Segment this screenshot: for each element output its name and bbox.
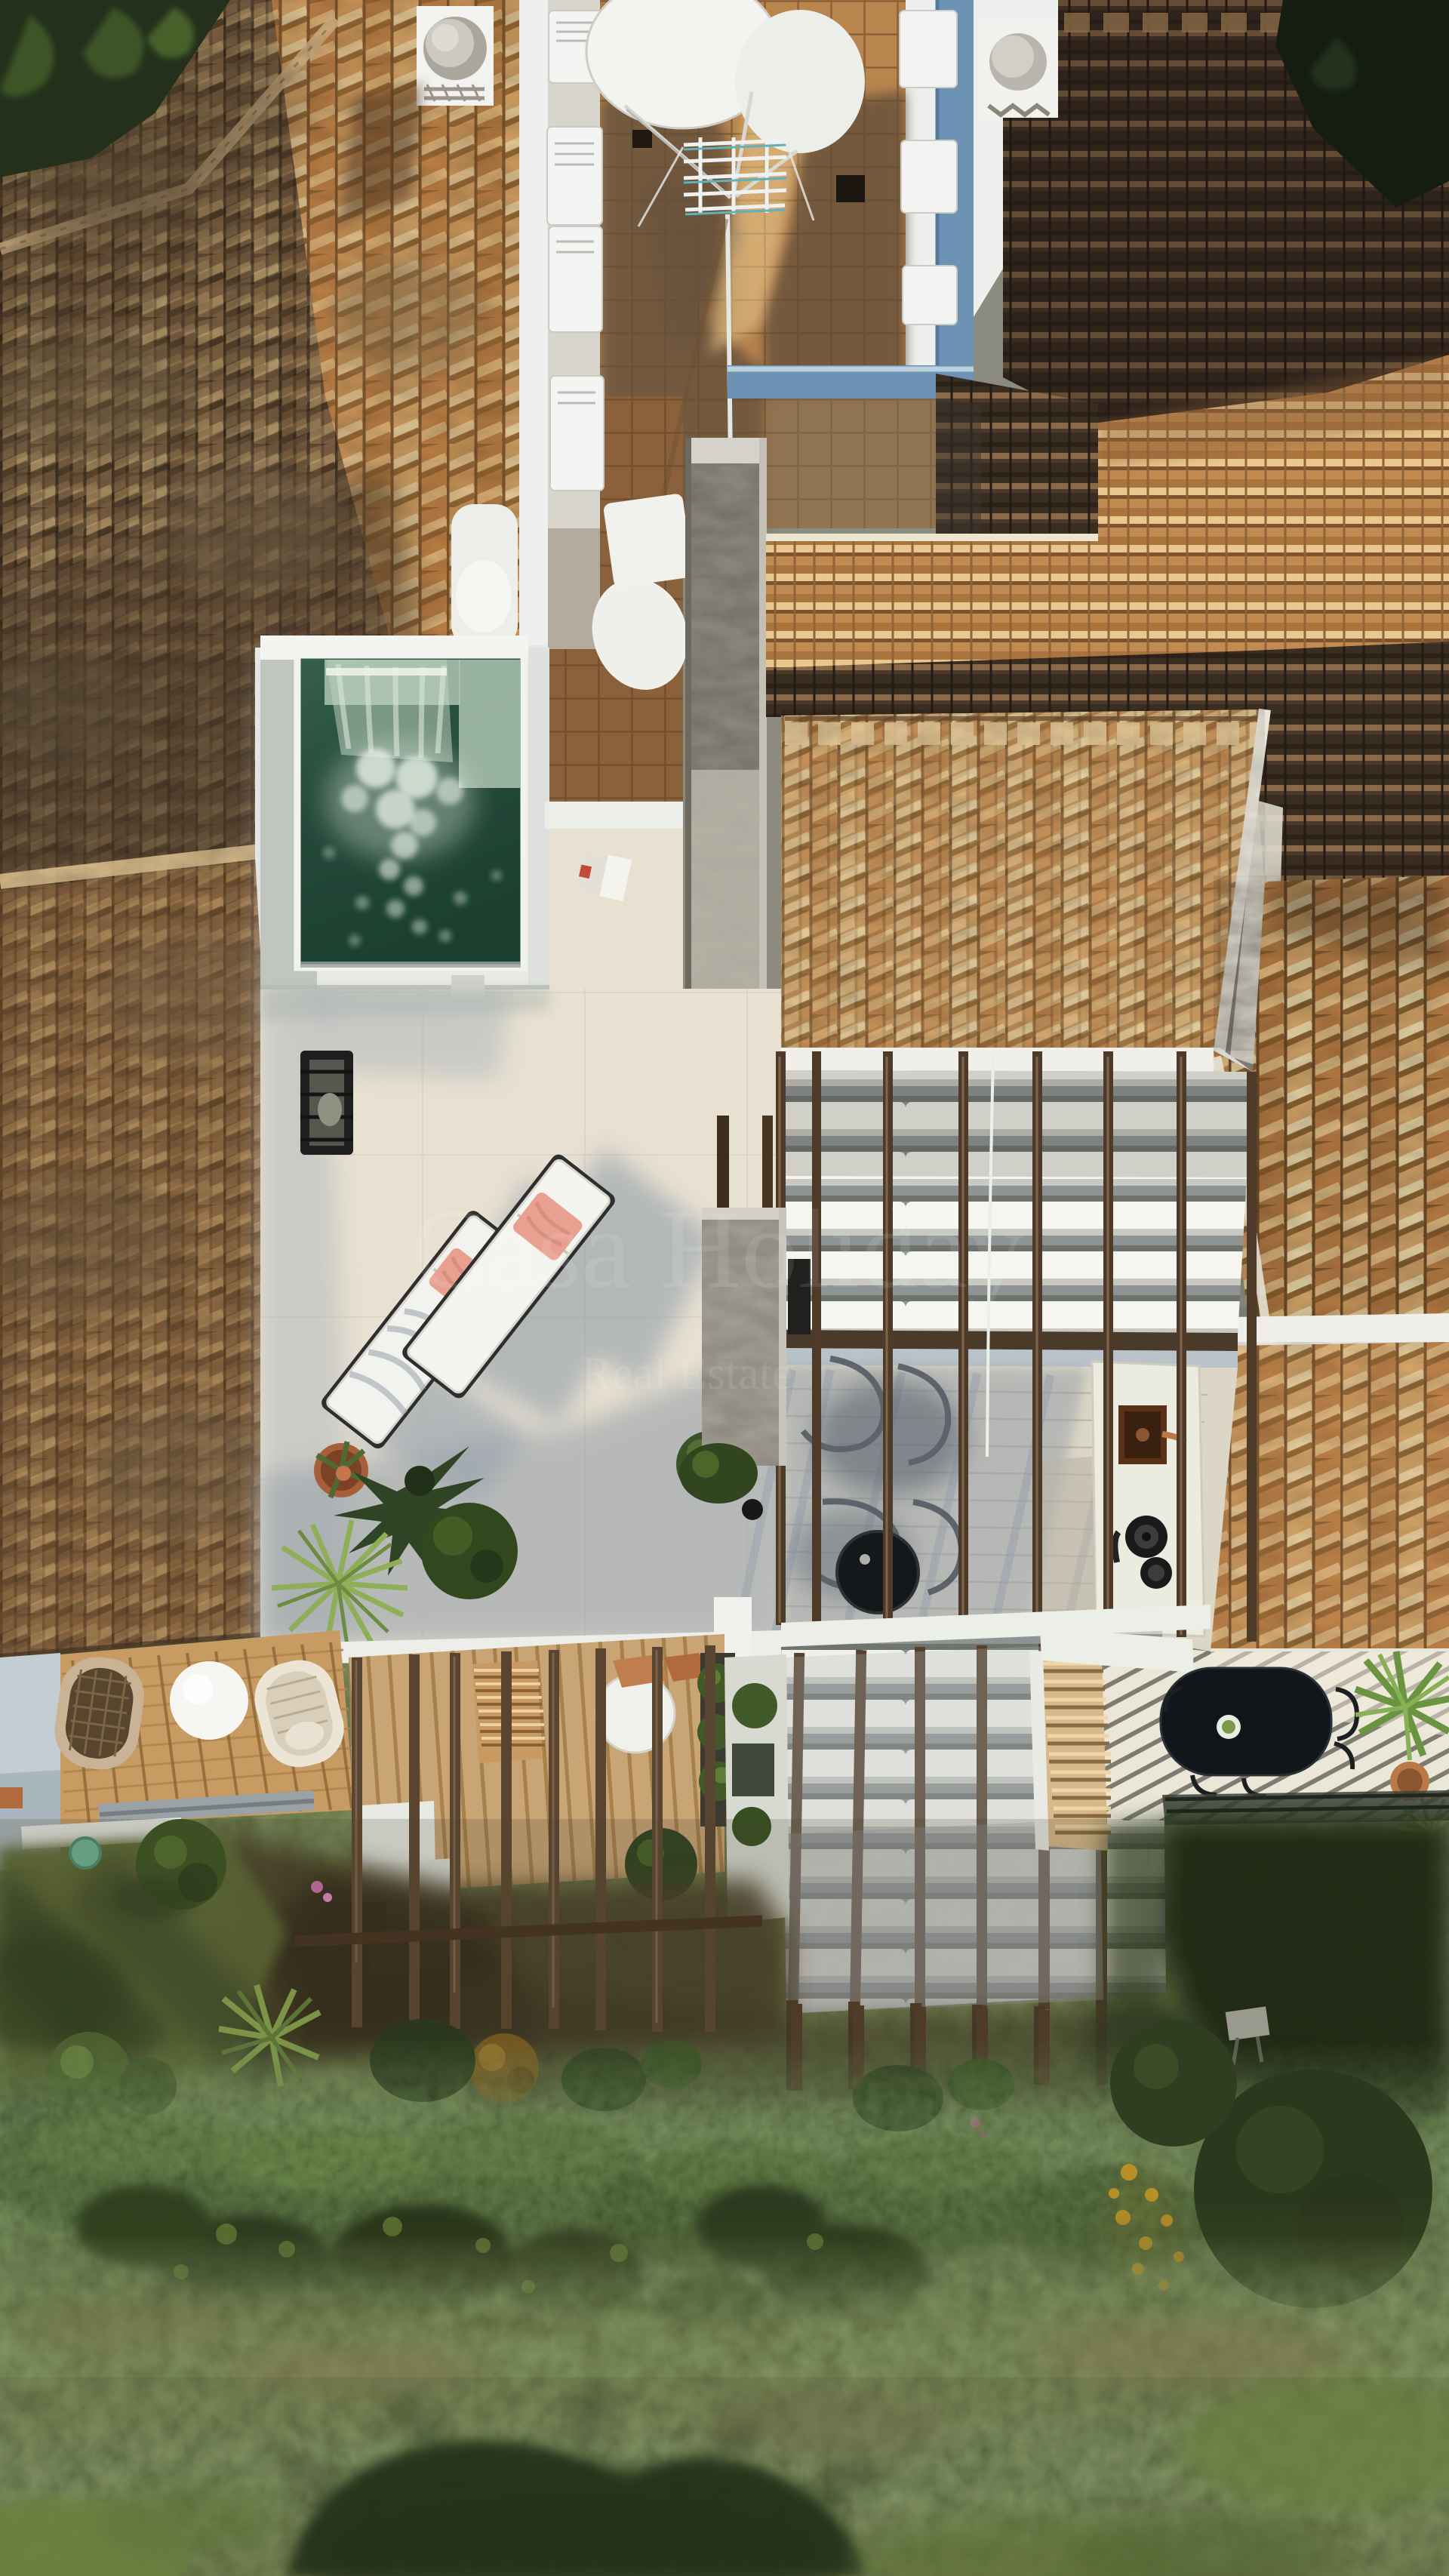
svg-text:Real Estate: Real Estate <box>581 1348 793 1399</box>
svg-text:Casa Holiday: Casa Holiday <box>411 1186 1024 1312</box>
